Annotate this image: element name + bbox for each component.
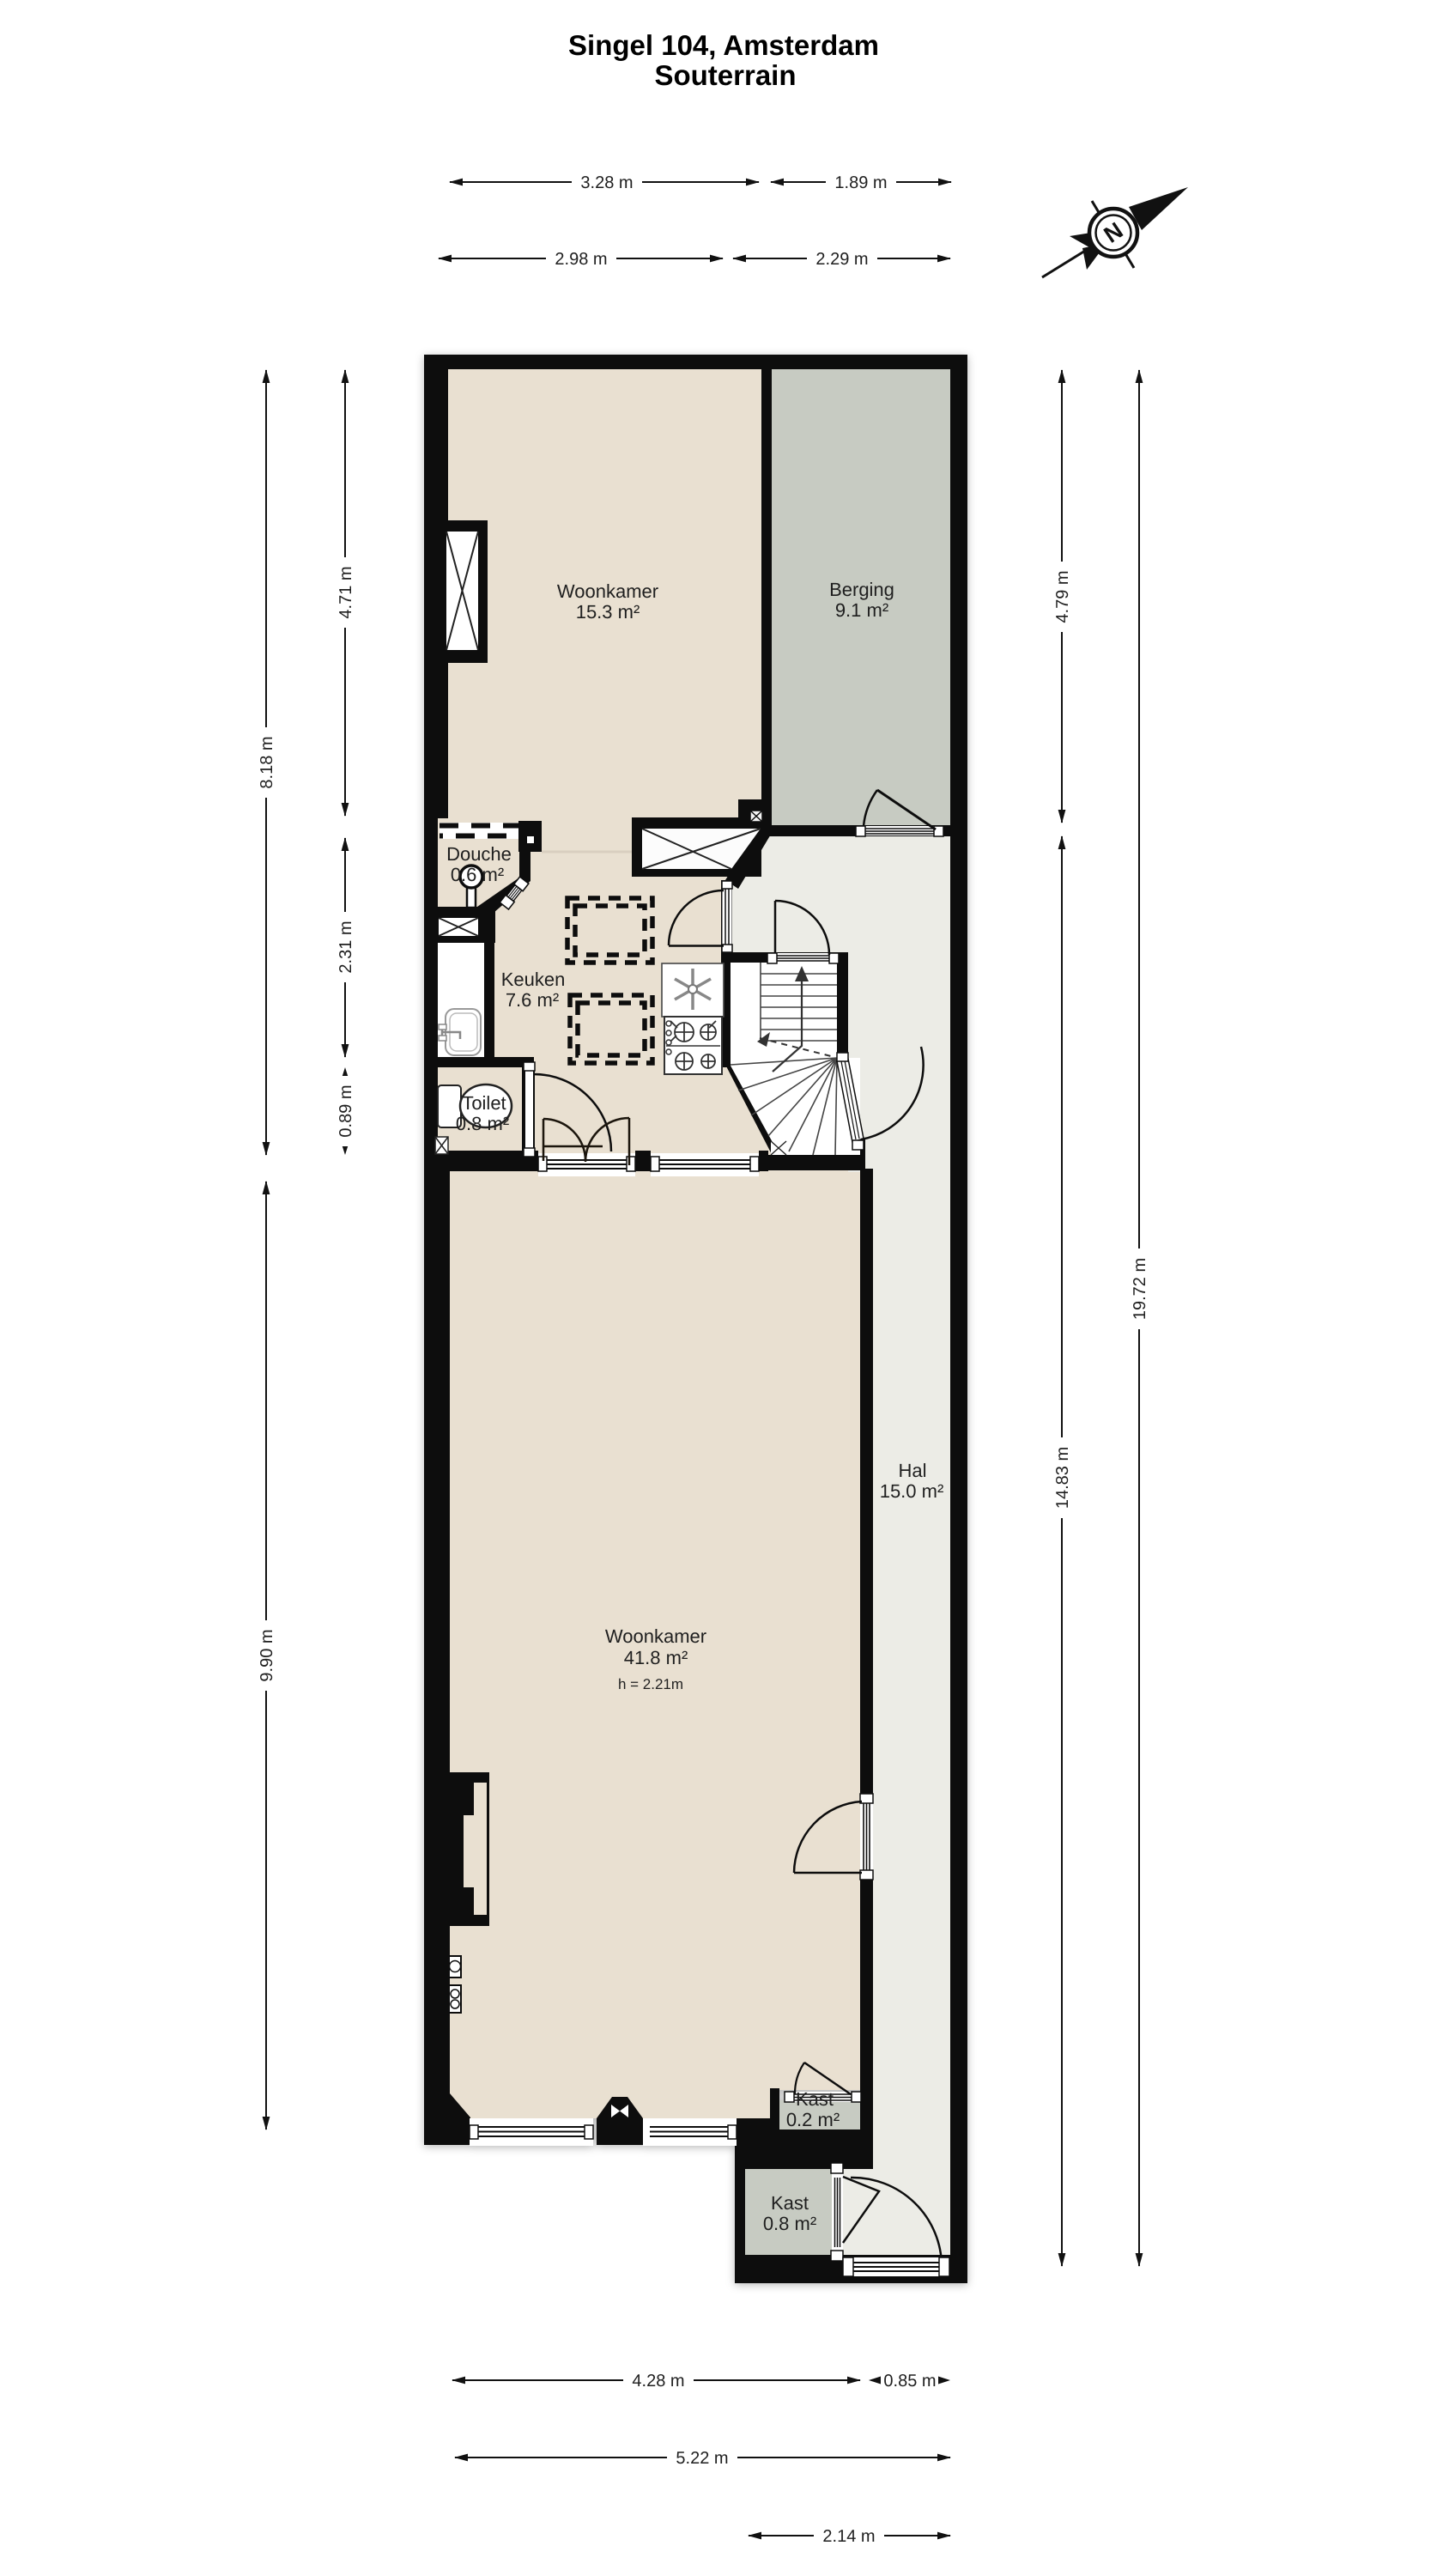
svg-text:8.18 m: 8.18 m [258,736,276,788]
svg-text:0.89 m: 0.89 m [336,1084,355,1137]
svg-text:7.6 m²: 7.6 m² [506,989,559,1011]
svg-text:15.3 m²: 15.3 m² [576,601,640,623]
svg-text:5.22 m: 5.22 m [676,2449,728,2468]
svg-text:2.29 m: 2.29 m [815,250,868,269]
svg-text:0.2 m²: 0.2 m² [786,2109,840,2130]
svg-text:9.90 m: 9.90 m [258,1629,276,1681]
svg-text:Kast: Kast [771,2192,809,2214]
svg-text:0.6 m²: 0.6 m² [451,864,504,885]
svg-text:4.71 m: 4.71 m [336,566,355,618]
svg-text:Berging: Berging [829,579,894,600]
svg-text:41.8 m²: 41.8 m² [624,1647,688,1668]
svg-text:h = 2.21m: h = 2.21m [618,1676,683,1692]
svg-text:0.8 m²: 0.8 m² [763,2213,816,2234]
svg-text:Kast: Kast [796,2088,834,2110]
svg-text:0.8 m²: 0.8 m² [456,1113,509,1134]
svg-text:Keuken: Keuken [501,969,566,990]
svg-text:2.14 m: 2.14 m [822,2527,875,2546]
svg-text:4.79 m: 4.79 m [1053,570,1072,623]
svg-text:Douche: Douche [446,843,512,865]
svg-text:3.28 m: 3.28 m [580,173,633,192]
svg-text:Toilet: Toilet [462,1092,506,1114]
svg-text:Woonkamer: Woonkamer [605,1625,706,1647]
svg-text:Hal: Hal [898,1460,926,1481]
svg-text:14.83 m: 14.83 m [1053,1447,1072,1509]
svg-text:Souterrain: Souterrain [654,59,796,91]
svg-text:2.98 m: 2.98 m [555,250,607,269]
svg-text:4.28 m: 4.28 m [632,2372,684,2391]
svg-text:9.1 m²: 9.1 m² [835,599,888,621]
svg-text:1.89 m: 1.89 m [834,173,887,192]
svg-text:2.31 m: 2.31 m [336,920,355,973]
svg-text:Woonkamer: Woonkamer [557,580,658,602]
svg-text:Singel 104, Amsterdam: Singel 104, Amsterdam [568,29,879,61]
svg-text:0.85 m: 0.85 m [883,2372,936,2391]
svg-text:19.72 m: 19.72 m [1131,1258,1149,1320]
svg-text:15.0 m²: 15.0 m² [880,1480,944,1502]
